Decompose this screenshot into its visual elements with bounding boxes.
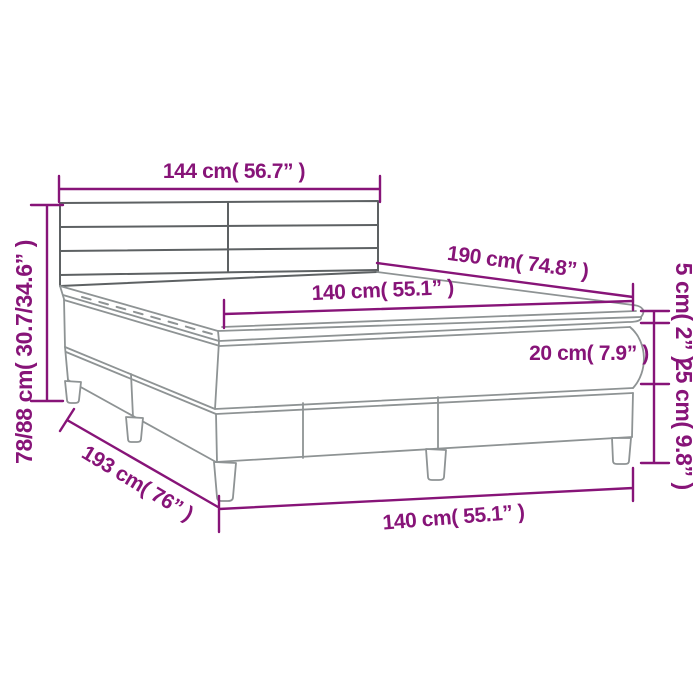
dimension-label-mattress-length: 190 cm( 74.8” ): [446, 242, 590, 283]
dimension-diagram: 144 cm( 56.7” ) 78/88 cm( 30.7/34.6” ) 1…: [0, 0, 700, 700]
dimension-base-width: 140 cm( 55.1” ): [219, 468, 633, 535]
bed-leg-left-middle: [126, 417, 143, 442]
mattress-front-corner-edge: [215, 341, 219, 409]
topper-quilt-stitches: [82, 297, 212, 334]
base-front-corner-edge: [216, 414, 217, 462]
headboard: [60, 201, 378, 286]
bed-leg-front-corner: [214, 462, 236, 501]
headboard-slat-lines: [60, 225, 378, 275]
bed-leg-back-left: [65, 381, 81, 403]
dimension-line: [641, 311, 669, 463]
dimension-label-base-height: 25 cm( 9.8” ): [671, 358, 697, 490]
bed-dimension-drawing: 144 cm( 56.7” ) 78/88 cm( 30.7/34.6” ) 1…: [0, 0, 700, 700]
topper-left-edge: [60, 286, 218, 331]
bed-leg-front-middle: [426, 449, 446, 480]
dimension-annotations: 144 cm( 56.7” ) 78/88 cm( 30.7/34.6” ) 1…: [11, 160, 697, 535]
dimension-label-total-height: 78/88 cm( 30.7/34.6” ): [11, 240, 37, 464]
dimension-label-headboard-width: 144 cm( 56.7” ): [163, 160, 305, 183]
dimension-label-base-width: 140 cm( 55.1” ): [382, 500, 526, 534]
dimension-label-mattress-width: 140 cm( 55.1” ): [311, 276, 454, 305]
bed-leg-front-right: [612, 438, 631, 464]
dimension-label-mattress-thickness: 20 cm( 7.9” ): [529, 342, 649, 365]
dimension-label-topper-thickness: 5 cm( 2” ): [671, 263, 697, 364]
base-right-edge: [632, 393, 633, 437]
dimension-headboard-width: 144 cm( 56.7” ): [59, 160, 380, 202]
base-panel-seams: [131, 374, 438, 458]
topper-left-face-bottom: [63, 295, 219, 341]
dimension-total-height: 78/88 cm( 30.7/34.6” ): [11, 205, 63, 464]
